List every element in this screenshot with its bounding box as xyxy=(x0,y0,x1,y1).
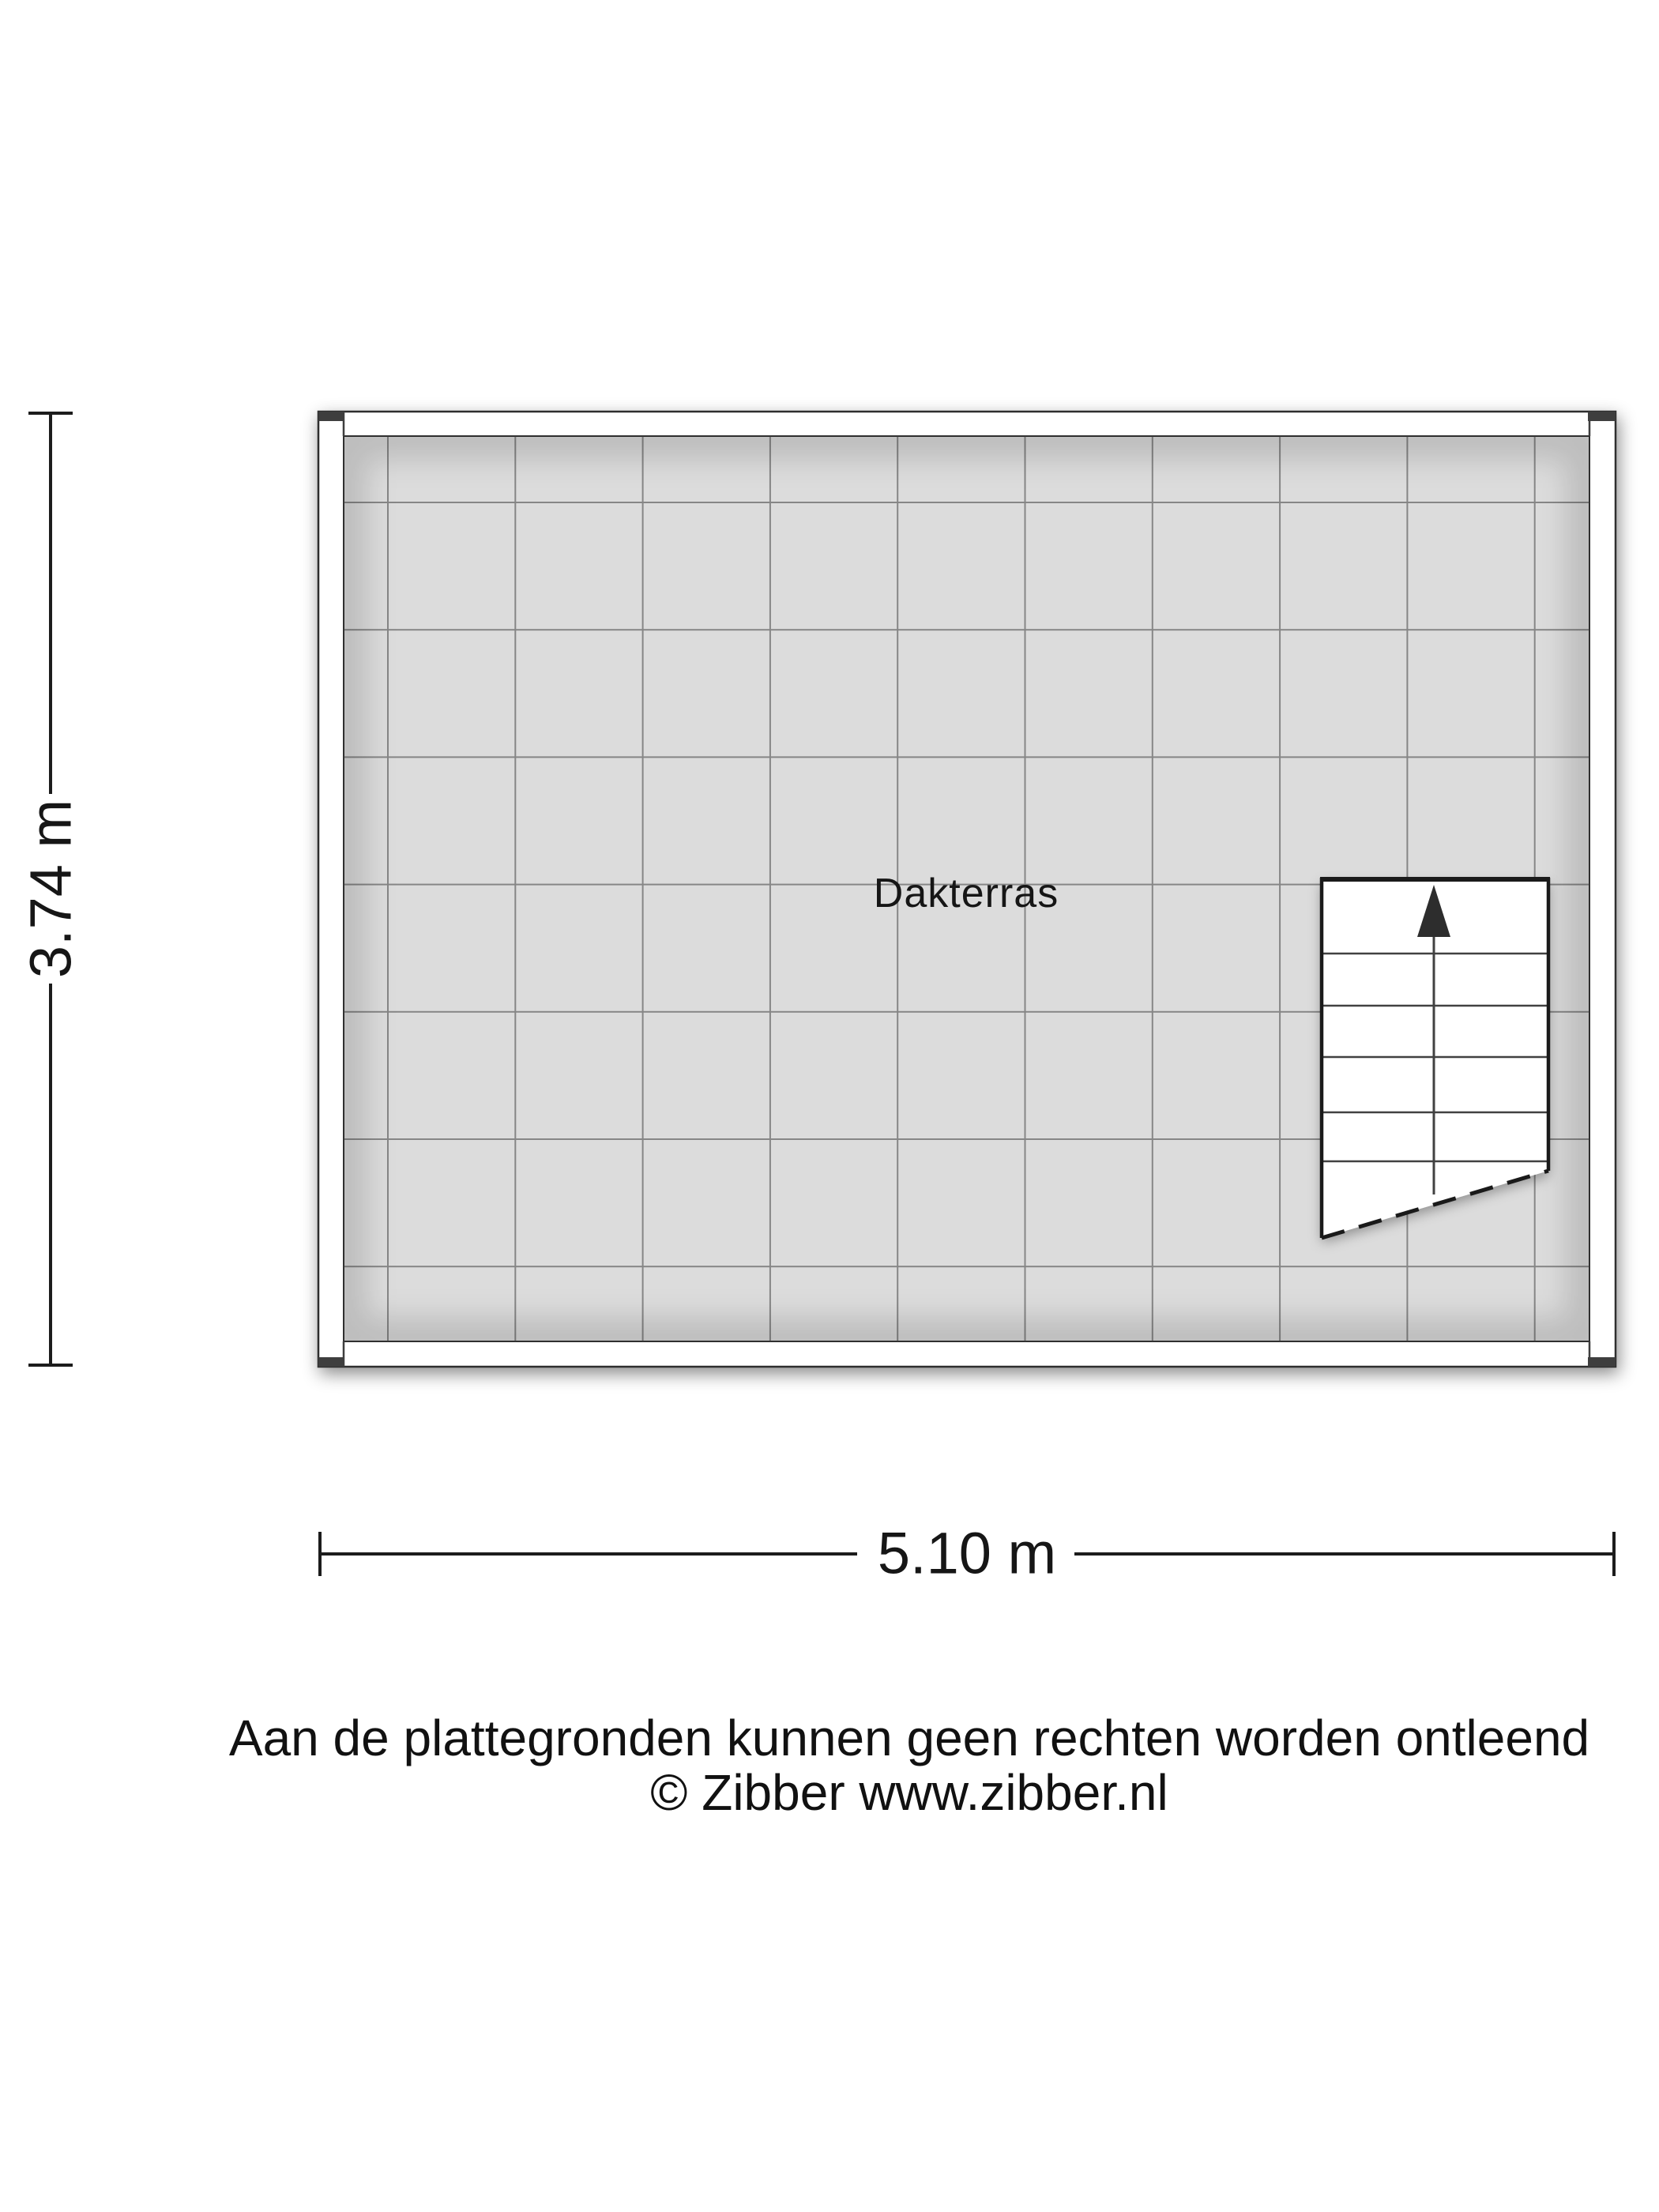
wall-cap-top-left xyxy=(318,412,344,421)
height-dimension: 3.74 m xyxy=(18,413,84,1365)
width-dimension-label: 5.10 m xyxy=(878,1521,1056,1586)
wall-cap-bottom-left xyxy=(318,1357,344,1367)
height-dimension-label: 3.74 m xyxy=(18,799,84,978)
width-dimension: 5.10 m xyxy=(318,1521,1616,1586)
wall-cap-bottom-right xyxy=(1588,1357,1616,1367)
roof-terrace-floorplan: Dakterras 3.74 m 5.10 m xyxy=(0,0,1659,2212)
disclaimer: Aan de plattegronden kunnen geen rechten… xyxy=(119,1711,1659,1820)
disclaimer-line1: Aan de plattegronden kunnen geen rechten… xyxy=(119,1711,1659,1766)
disclaimer-line2: © Zibber www.zibber.nl xyxy=(119,1766,1659,1820)
room-label: Dakterras xyxy=(874,871,1059,916)
floorplan-page: Dakterras 3.74 m 5.10 m Aan de plattegro… xyxy=(0,0,1659,2212)
wall-cap-top-right xyxy=(1588,412,1616,421)
